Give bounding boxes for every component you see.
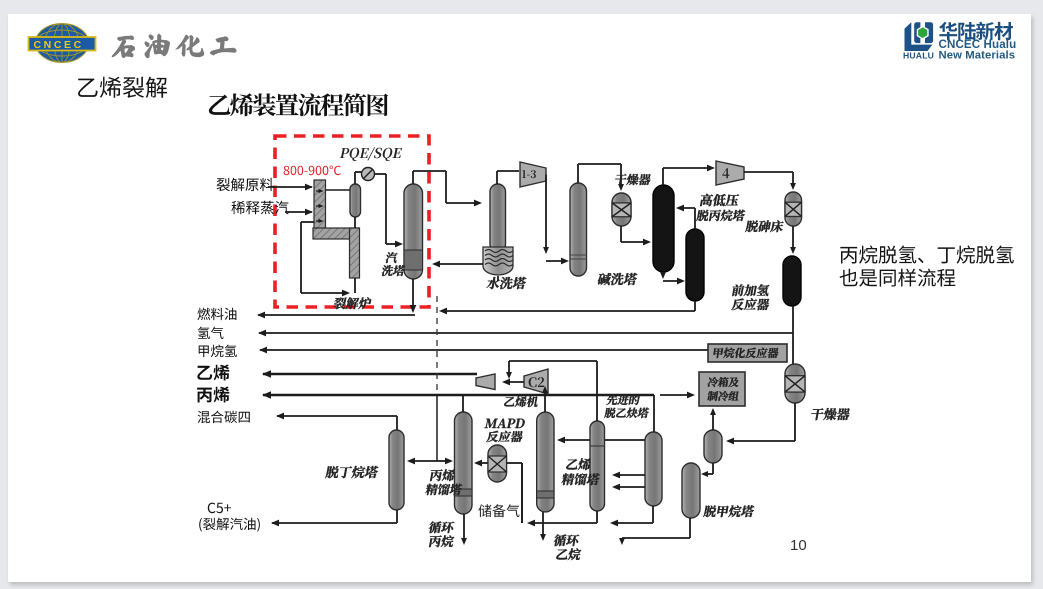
svg-text:HUALU: HUALU — [903, 51, 934, 61]
svg-text:10: 10 — [790, 537, 807, 554]
svg-text:New Materials: New Materials — [939, 49, 1016, 61]
svg-text:CNCEC: CNCEC — [34, 39, 84, 51]
